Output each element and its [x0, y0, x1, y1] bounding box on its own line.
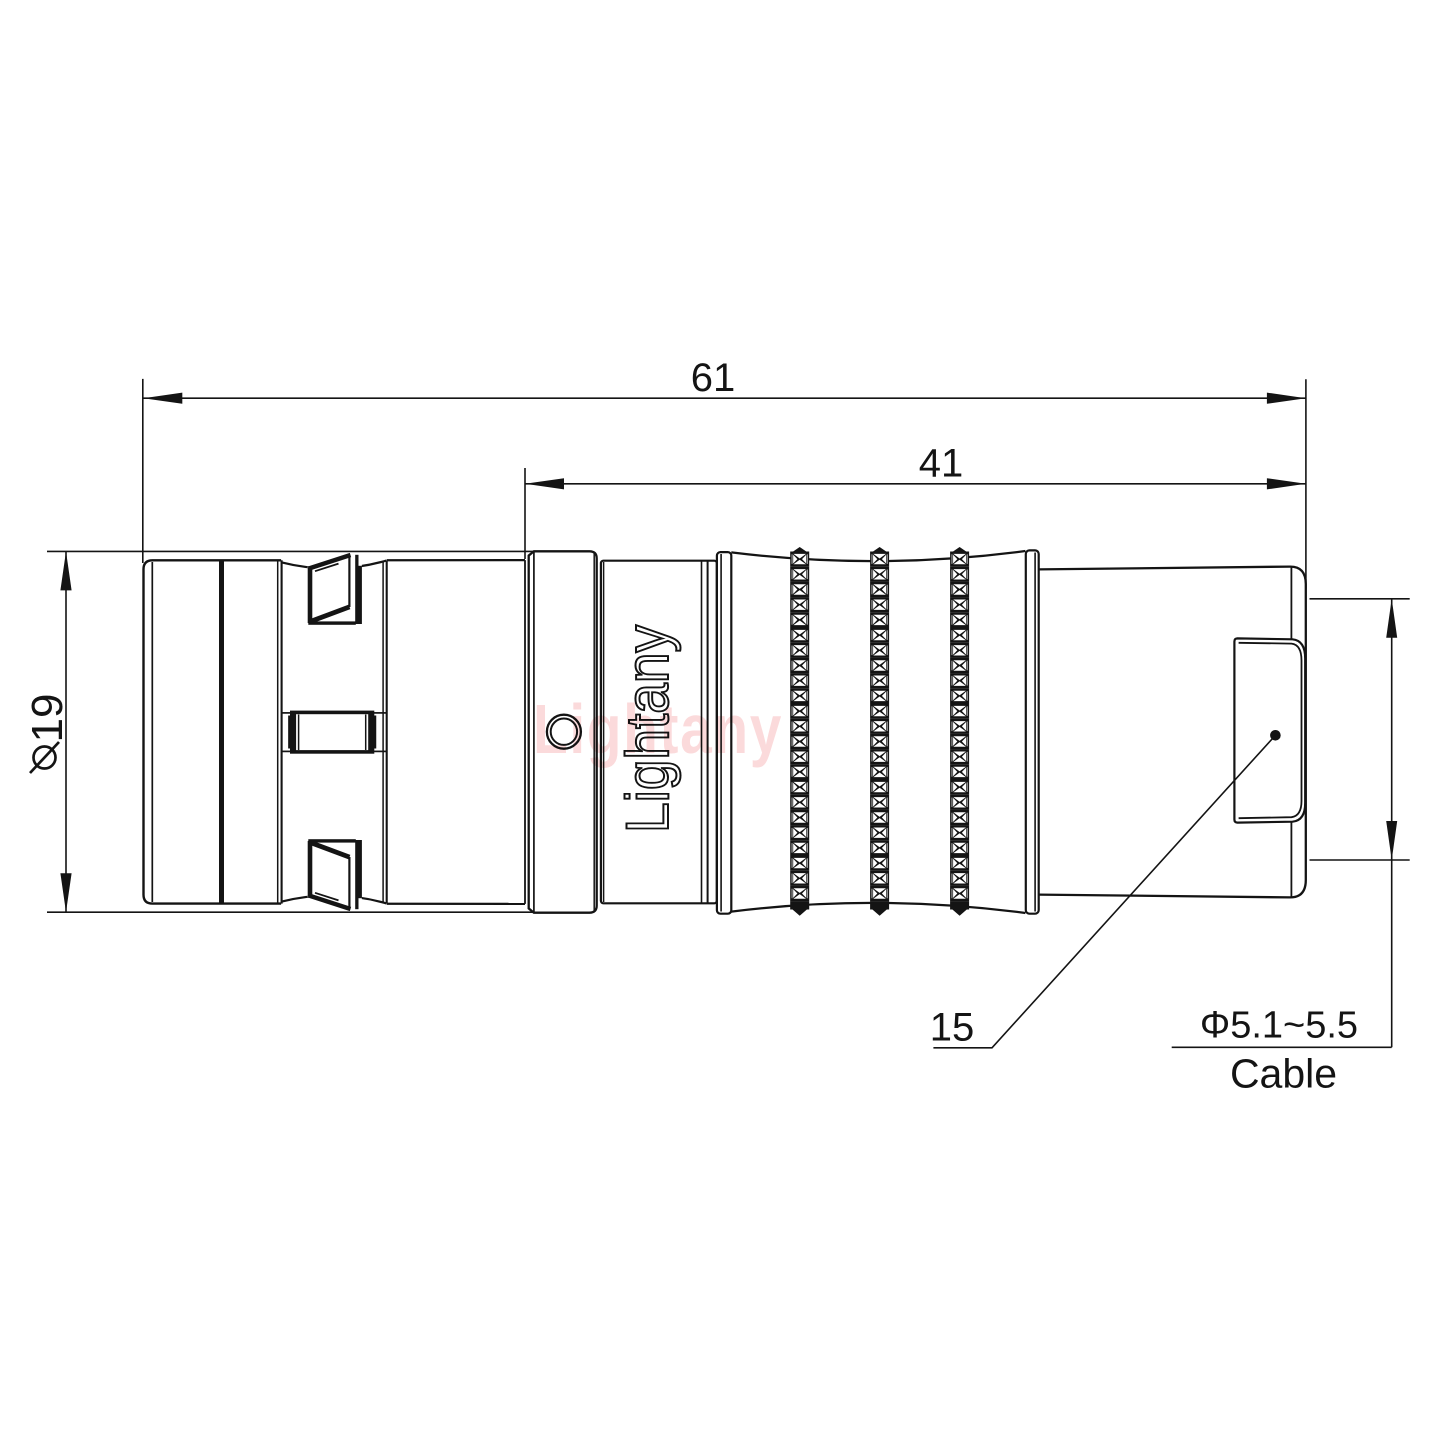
svg-text:15: 15 [930, 1006, 975, 1050]
svg-text:41: 41 [919, 441, 964, 485]
svg-text:Cable: Cable [1230, 1051, 1337, 1097]
svg-text:19: 19 [23, 694, 72, 743]
svg-text:61: 61 [691, 356, 736, 400]
svg-text:Lightany: Lightany [533, 690, 783, 768]
svg-text:Φ5.1~5.5: Φ5.1~5.5 [1200, 1005, 1358, 1047]
